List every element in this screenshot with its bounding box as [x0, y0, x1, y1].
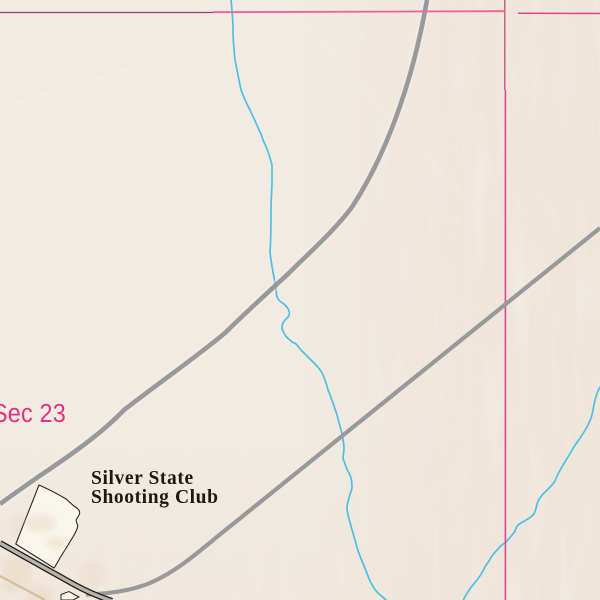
svg-text:Silver State: Silver State — [91, 468, 194, 489]
svg-text:Sec 23: Sec 23 — [0, 400, 66, 428]
svg-text:Shooting Club: Shooting Club — [91, 487, 219, 508]
